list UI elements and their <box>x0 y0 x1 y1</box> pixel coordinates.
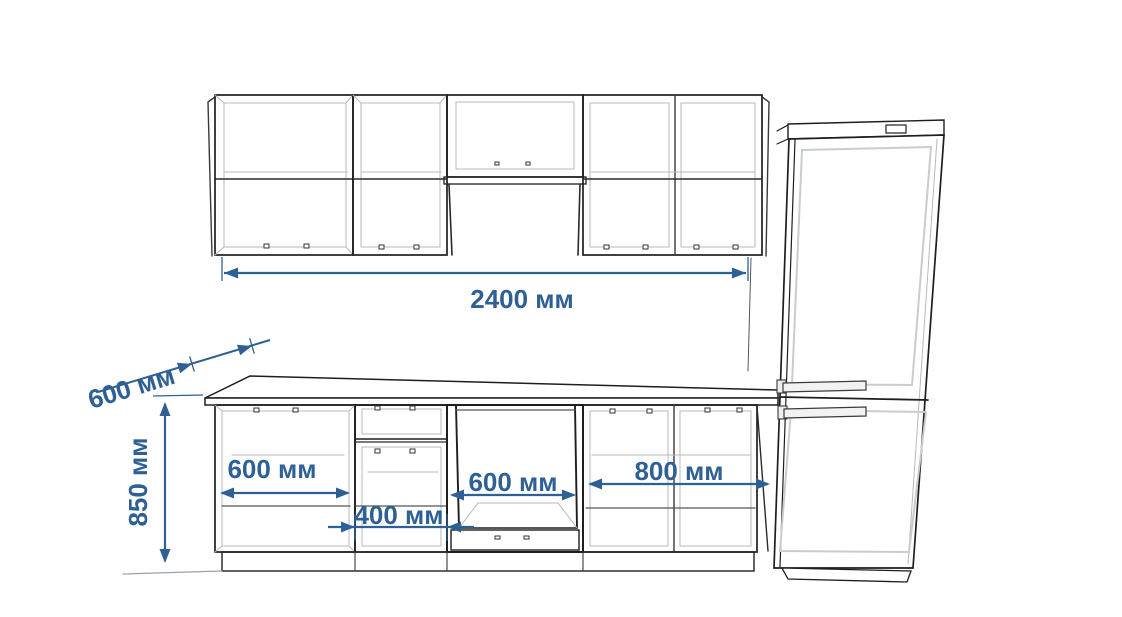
wall-cabinet-hinges <box>264 162 738 249</box>
wall-cabinet-3 <box>583 95 762 255</box>
dim-base-left-label: 600 мм <box>227 454 316 484</box>
floor-line <box>123 571 222 574</box>
wall-cabinets <box>208 95 769 371</box>
fridge-plinth <box>782 568 911 582</box>
base-cabinets <box>123 405 768 574</box>
dim-drawer-unit-label: 400 мм <box>354 500 443 530</box>
wall-cabinet-1 <box>215 95 353 255</box>
wall-cabinet-hood <box>444 95 586 255</box>
wall-cabinets-left-side <box>208 97 215 256</box>
drawing-svg: 2400 мм 600 мм 850 мм 600 мм <box>0 0 1122 617</box>
dimensions: 2400 мм 600 мм 850 мм 600 мм <box>84 257 770 563</box>
fridge-display <box>886 125 906 133</box>
base-plinth <box>123 552 754 574</box>
dim-base-height-label: 850 мм <box>123 437 153 526</box>
dim-niche-label: 600 мм <box>468 467 557 497</box>
dim-base-right-label: 800 мм <box>634 456 723 486</box>
dim-niche: 600 мм <box>450 467 576 501</box>
wall-cabinets-right-side <box>762 97 769 256</box>
kitchen-elevation-drawing: 2400 мм 600 мм 850 мм 600 мм <box>0 0 1122 617</box>
dim-base-height: 850 мм <box>123 395 203 563</box>
countertop <box>205 376 778 405</box>
dim-wall-total-label: 2400 мм <box>470 284 574 314</box>
wall-cabinet-2 <box>353 95 447 255</box>
dim-base-left: 600 мм <box>220 454 350 499</box>
dim-wall-total: 2400 мм <box>222 257 748 314</box>
refrigerator <box>774 120 944 582</box>
dim-base-right: 800 мм <box>588 456 770 490</box>
